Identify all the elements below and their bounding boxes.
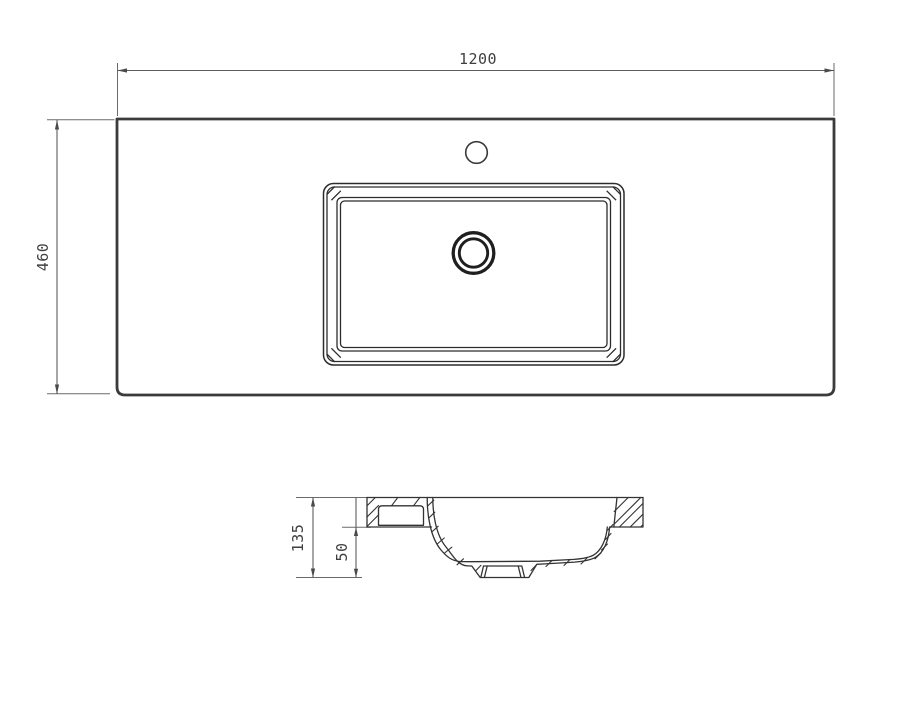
section-profile (367, 498, 643, 578)
plan-view: 1200 460 (34, 50, 834, 395)
basin-interior-profile (427, 498, 607, 562)
width-dimension-label: 1200 (459, 50, 497, 68)
technical-drawing-page: 1200 460 (0, 0, 921, 718)
drain-boss-wall (518, 566, 521, 578)
arrowhead-left (118, 68, 128, 72)
arrowhead-bottom (55, 385, 59, 395)
height-dimension-label: 135 (289, 524, 307, 553)
section-hatching (367, 498, 643, 572)
arrowhead-bottom (354, 569, 358, 578)
left-rim-cavity (379, 506, 424, 526)
depth-dimension-label: 460 (34, 243, 52, 272)
depth-dimension: 460 (34, 120, 59, 394)
section-view: 135 50 (289, 498, 643, 578)
arrowhead-top (55, 120, 59, 130)
arrowhead-top (311, 498, 315, 507)
sink-technical-drawing: 1200 460 (0, 0, 921, 718)
drain-boss-wall (484, 566, 487, 578)
arrowhead-bottom (311, 569, 315, 578)
drain-boss-wall (481, 566, 484, 578)
section-extension-lines (296, 498, 371, 578)
left-rim-outline (367, 498, 432, 528)
arrowhead-top (354, 527, 358, 536)
height-dimension: 135 (289, 498, 315, 578)
basin-depth-dimension: 50 (333, 498, 358, 578)
drain-boss-wall (522, 566, 525, 578)
width-dimension: 1200 (118, 50, 835, 73)
arrowhead-right (825, 68, 835, 72)
countertop-outline (117, 119, 834, 395)
basin-depth-dimension-label: 50 (333, 542, 351, 561)
